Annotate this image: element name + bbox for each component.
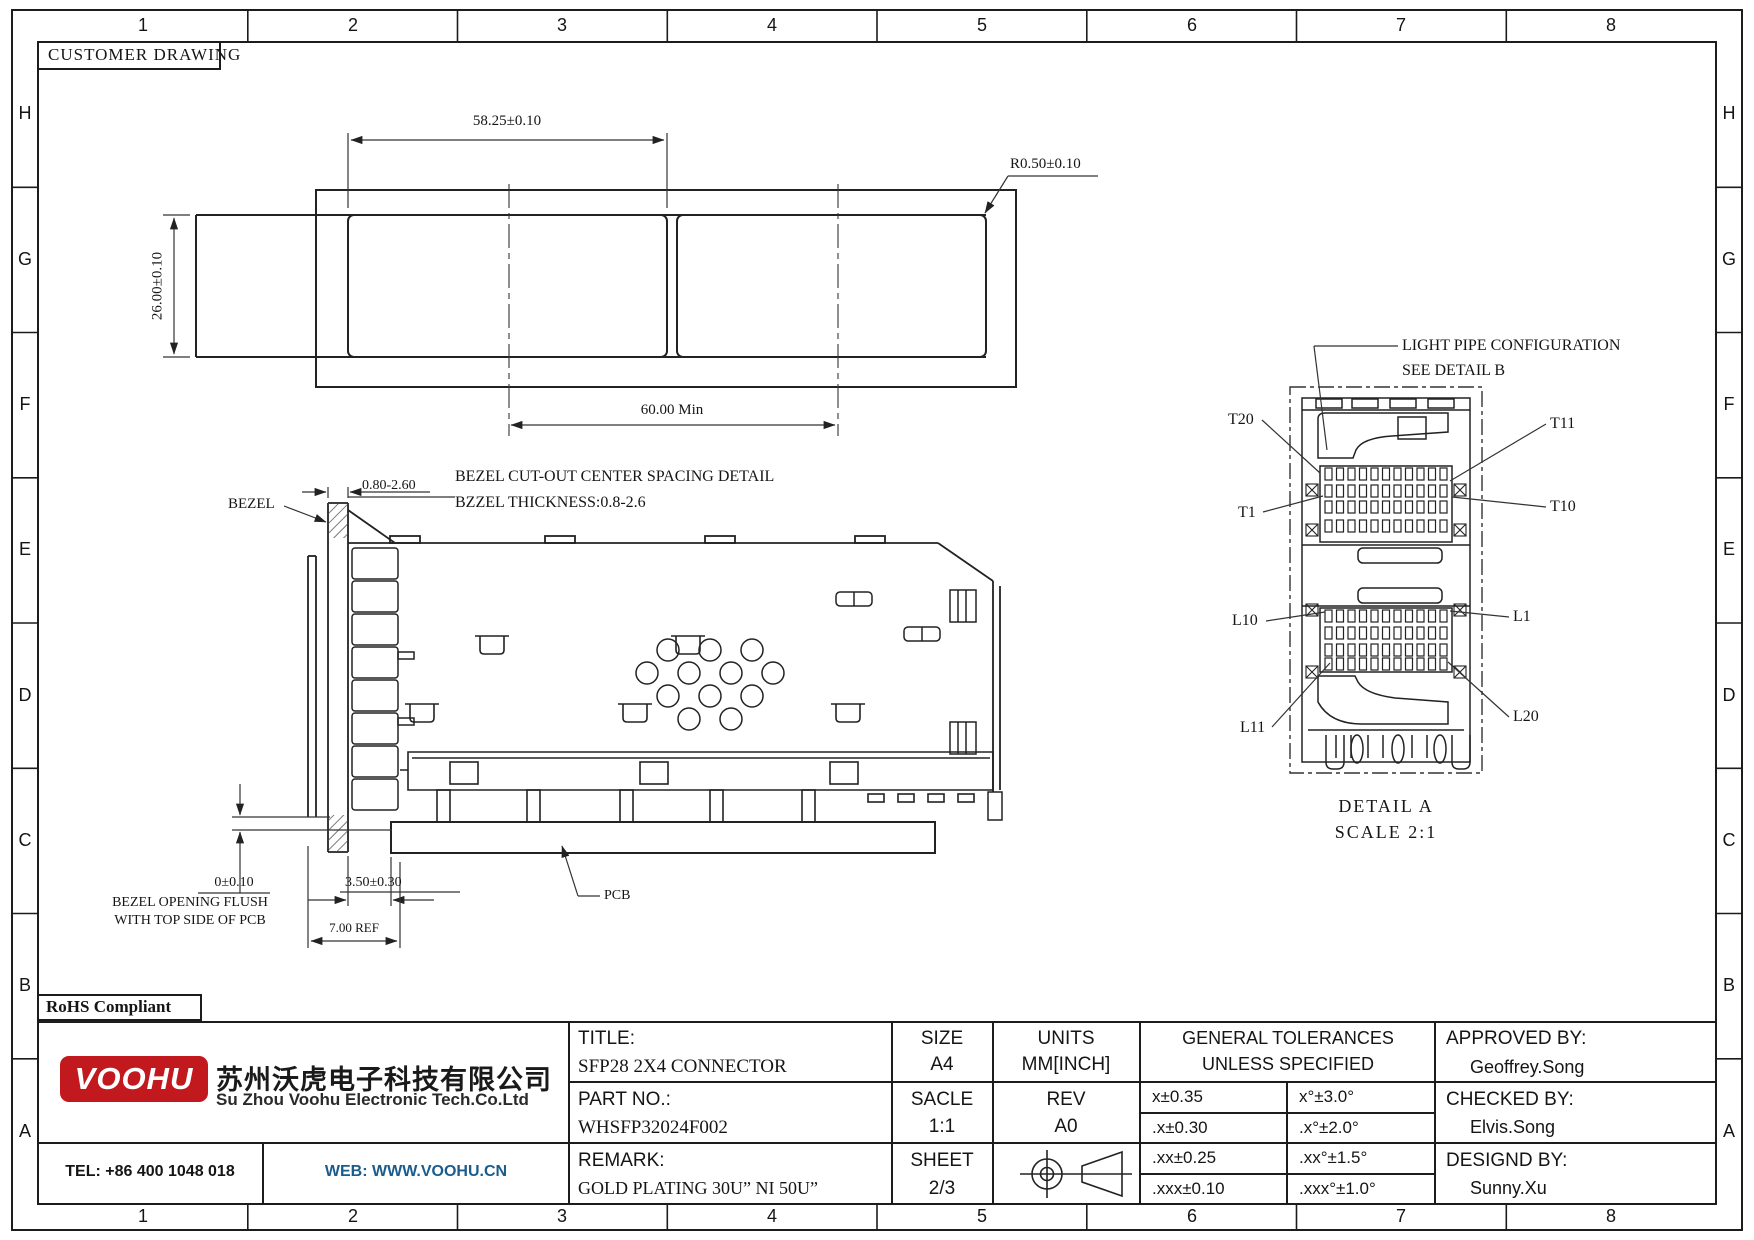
part-no-label: PART NO.: <box>578 1089 671 1111</box>
flush-note-line1: BEZEL OPENING FLUSH <box>112 895 268 911</box>
grid-row-label-left: B <box>19 975 31 996</box>
dim-r0-50: R0.50±0.10 <box>1010 156 1081 173</box>
grid-col-label-top: 6 <box>1187 15 1197 36</box>
part-no-value: WHSFP32024F002 <box>578 1117 728 1139</box>
grid-col-label-top: 2 <box>348 15 358 36</box>
grid-row-label-right: B <box>1723 975 1735 996</box>
grid-row-label-right: H <box>1723 103 1736 124</box>
side-view-vent-holes <box>636 639 784 730</box>
grid-col-label-top: 3 <box>557 15 567 36</box>
company-tel: TEL: +86 400 1048 018 <box>65 1163 234 1181</box>
sheet-label: SHEET <box>910 1150 973 1172</box>
grid-row-label-left: G <box>18 249 32 270</box>
tolerance-angular-2: .x°±2.0° <box>1299 1118 1359 1138</box>
tolerance-linear-4: .xxx±0.10 <box>1152 1179 1225 1199</box>
dim-26-00: 26.00±0.10 <box>150 252 167 320</box>
remark-value: GOLD PLATING 30U” NI 50U” <box>578 1178 818 1199</box>
voohu-logo-text: VOOHU <box>75 1061 194 1097</box>
drawing-sheet: 1 2 3 4 5 6 7 8 1 2 3 4 5 6 7 8 H G F E … <box>0 0 1754 1240</box>
dim-60-00: 60.00 Min <box>641 402 704 419</box>
grid-col-label-bottom: 7 <box>1396 1206 1406 1227</box>
side-view-cage <box>308 536 1000 817</box>
detail-a-leaders <box>1262 346 1546 727</box>
light-pipe-note-line1: LIGHT PIPE CONFIGURATION <box>1402 337 1620 355</box>
grid-row-label-left: C <box>19 830 32 851</box>
dim-bezel-thickness: 0.80-2.60 <box>362 478 416 494</box>
title-label: TITLE: <box>578 1028 635 1050</box>
grid-col-label-bottom: 4 <box>767 1206 777 1227</box>
grid-row-label-left: A <box>19 1121 31 1142</box>
grid-col-label-bottom: 2 <box>348 1206 358 1227</box>
grid-col-label-bottom: 5 <box>977 1206 987 1227</box>
checked-label: CHECKED BY: <box>1446 1089 1574 1111</box>
detail-a-scale: SCALE 2:1 <box>1335 822 1438 843</box>
projection-symbol <box>1020 1150 1132 1198</box>
grid-col-label-bottom: 6 <box>1187 1206 1197 1227</box>
pin-label-l20: L20 <box>1513 708 1539 726</box>
grid-col-label-top: 1 <box>138 15 148 36</box>
grid-row-label-right: A <box>1723 1121 1735 1142</box>
top-view-caption-line2: BZZEL THICKNESS:0.8-2.6 <box>455 494 646 512</box>
detail-a-phantom-box <box>1290 387 1482 773</box>
remark-label: REMARK: <box>578 1150 665 1172</box>
light-pipe-note-line2: SEE DETAIL B <box>1402 362 1505 380</box>
pin-label-t11: T11 <box>1550 415 1575 433</box>
flush-note-line2: WITH TOP SIDE OF PCB <box>114 913 265 929</box>
grid-col-label-bottom: 3 <box>557 1206 567 1227</box>
tolerances-header-line1: GENERAL TOLERANCES <box>1182 1028 1394 1049</box>
grid-col-label-top: 4 <box>767 15 777 36</box>
tolerance-angular-3: .xx°±1.5° <box>1299 1148 1367 1168</box>
company-web: WEB: WWW.VOOHU.CN <box>325 1163 507 1181</box>
grid-row-label-left: H <box>19 103 32 124</box>
grid-row-label-right: G <box>1722 249 1736 270</box>
voohu-logo: VOOHU <box>60 1056 208 1102</box>
tolerance-linear-3: .xx±0.25 <box>1152 1148 1216 1168</box>
size-value: A4 <box>930 1054 953 1076</box>
designed-label: DESIGND BY: <box>1446 1150 1567 1172</box>
side-view-right-features <box>836 590 1002 820</box>
grid-col-label-top: 5 <box>977 15 987 36</box>
drawing-canvas <box>0 0 1754 1240</box>
grid-row-label-right: F <box>1724 394 1735 415</box>
pin-label-l1: L1 <box>1513 608 1531 626</box>
approved-label: APPROVED BY: <box>1446 1028 1586 1050</box>
grid-row-label-left: E <box>19 539 31 560</box>
top-view-outline <box>196 190 1016 387</box>
tolerances-header-line2: UNLESS SPECIFIED <box>1202 1054 1374 1075</box>
grid-row-label-left: F <box>20 394 31 415</box>
dim-flush: 0±0.10 <box>214 875 253 891</box>
dim-pcb-setback: 3.50±0.30 <box>345 875 402 891</box>
rohs-label: RoHS Compliant <box>46 997 171 1017</box>
grid-row-label-left: D <box>19 685 32 706</box>
grid-col-label-bottom: 1 <box>138 1206 148 1227</box>
grid-col-label-bottom: 8 <box>1606 1206 1616 1227</box>
designed-value: Sunny.Xu <box>1470 1178 1547 1199</box>
scale-value: 1:1 <box>929 1116 955 1138</box>
title-value: SFP28 2X4 CONNECTOR <box>578 1056 787 1078</box>
detail-a-body <box>1302 398 1470 769</box>
detail-a-title: DETAIL A <box>1338 796 1433 817</box>
dim-58-25: 58.25±0.10 <box>473 113 541 130</box>
tolerance-angular-4: .xxx°±1.0° <box>1299 1179 1376 1199</box>
tolerance-linear-1: x±0.35 <box>1152 1087 1203 1107</box>
detail-a-pins <box>1325 468 1447 670</box>
side-view-bottom-flange <box>400 752 993 822</box>
scale-label: SACLE <box>911 1089 973 1111</box>
company-name-en: Su Zhou Voohu Electronic Tech.Co.Ltd <box>216 1090 529 1110</box>
top-view-dimensions <box>163 133 1098 425</box>
side-view-clips <box>405 636 865 722</box>
pcb-outline <box>391 822 935 853</box>
pcb-label: PCB <box>604 888 630 904</box>
checked-value: Elvis.Song <box>1470 1117 1555 1138</box>
grid-row-label-right: E <box>1723 539 1735 560</box>
pin-label-t20: T20 <box>1228 411 1254 429</box>
top-view-centerlines <box>509 184 838 436</box>
grid-col-label-top: 8 <box>1606 15 1616 36</box>
pin-label-l10: L10 <box>1232 612 1258 630</box>
approved-value: Geoffrey.Song <box>1470 1057 1584 1078</box>
sheet-value: 2/3 <box>929 1178 955 1200</box>
units-value: MM[INCH] <box>1022 1054 1111 1076</box>
customer-drawing-label: CUSTOMER DRAWING <box>48 45 241 65</box>
pin-label-t10: T10 <box>1550 498 1576 516</box>
pin-label-t1: T1 <box>1238 504 1256 522</box>
rev-label: REV <box>1046 1089 1085 1111</box>
dim-7-00-ref: 7.00 REF <box>329 920 379 936</box>
size-label: SIZE <box>921 1028 963 1050</box>
units-label: UNITS <box>1038 1028 1095 1050</box>
tolerance-angular-1: x°±3.0° <box>1299 1087 1354 1107</box>
grid-row-label-right: C <box>1723 830 1736 851</box>
tolerance-linear-2: .x±0.30 <box>1152 1118 1208 1138</box>
grid-col-label-top: 7 <box>1396 15 1406 36</box>
top-view-caption-line1: BEZEL CUT-OUT CENTER SPACING DETAIL <box>455 468 774 486</box>
pin-label-l11: L11 <box>1240 719 1265 737</box>
bezel-label: BEZEL <box>228 496 275 513</box>
rev-value: A0 <box>1054 1116 1077 1138</box>
grid-row-label-right: D <box>1723 685 1736 706</box>
